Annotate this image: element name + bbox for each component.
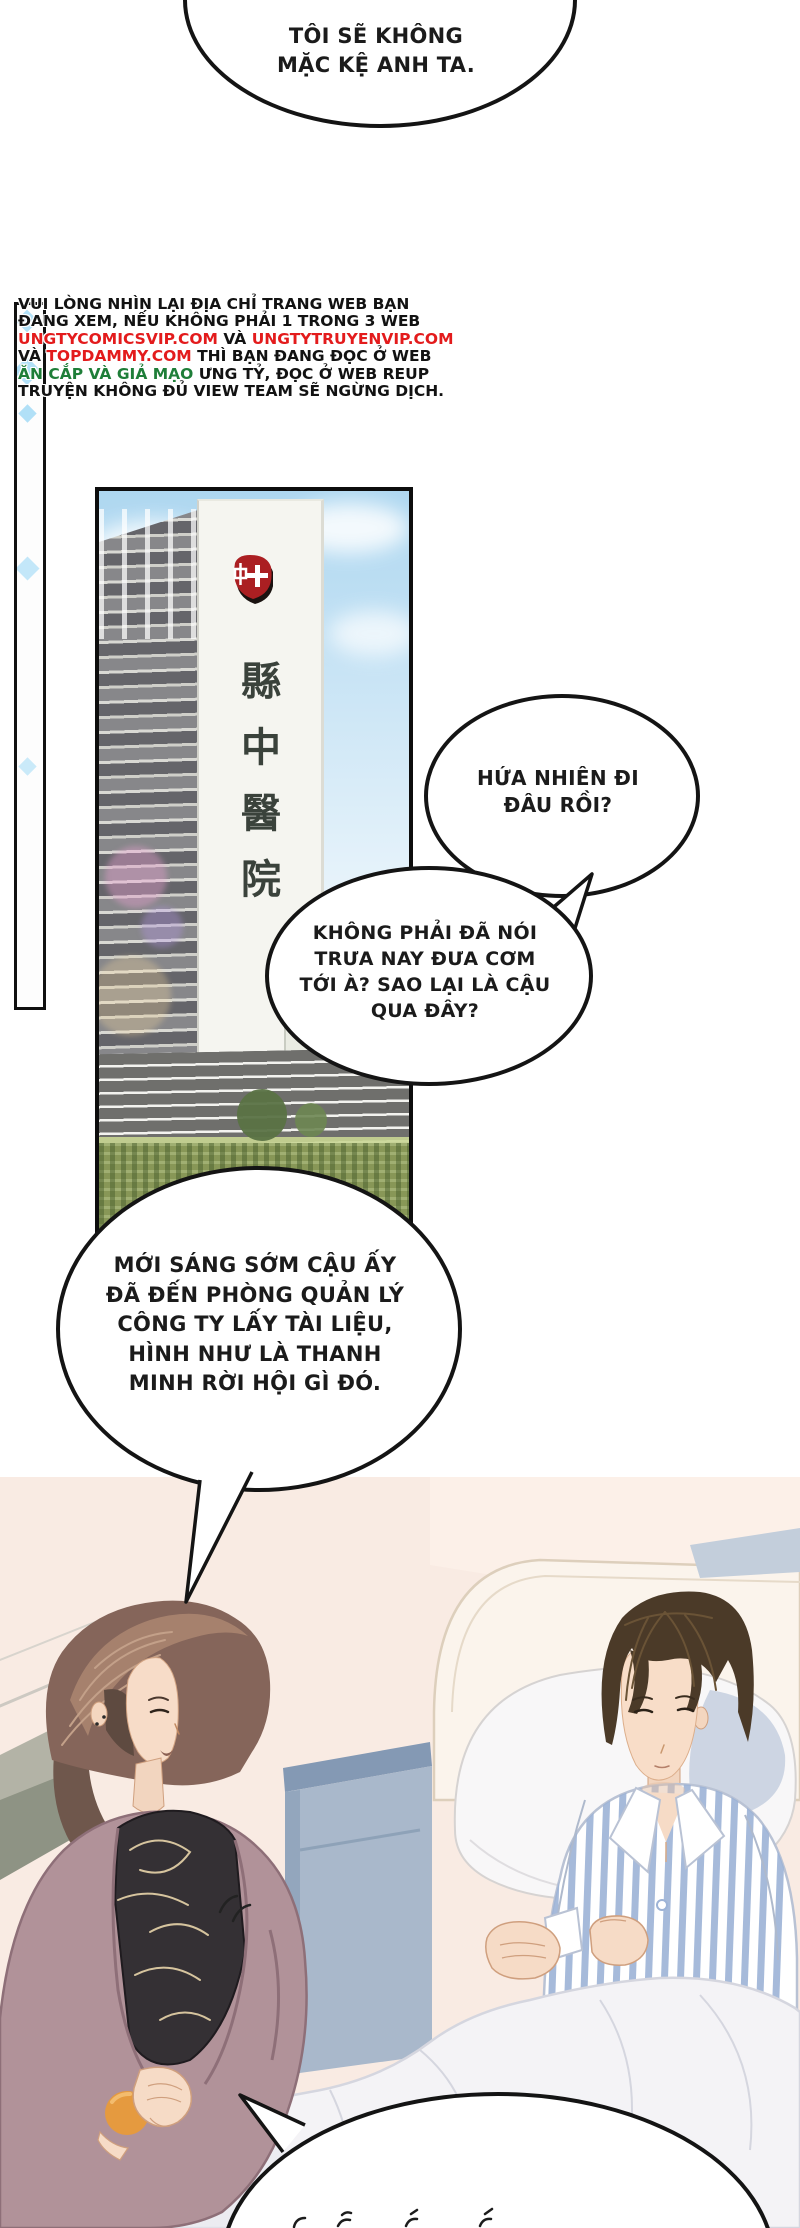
bubble-tail — [150, 1430, 270, 1615]
warning-segment: ĐANG XEM, NẾU KHÔNG PHẢI 1 TRONG 3 WEB — [18, 312, 420, 330]
tree — [295, 1103, 327, 1137]
warning-site-link: UNGTYTRUYENVIP.COM — [252, 330, 454, 348]
hospital-logo — [227, 553, 273, 605]
speech-text-top: TÔI SẼ KHÔNG MẶC KỆ ANH TA. — [215, 8, 537, 94]
warning-site-link: TOPDAMMY.COM — [46, 347, 191, 365]
tree — [237, 1089, 287, 1141]
panel-hospital-building: 縣 中 醫 院 — [95, 487, 413, 1240]
sign-char: 醫 — [237, 781, 285, 847]
clipped-letter-tops — [280, 2205, 510, 2228]
cloud — [329, 611, 413, 656]
warning-segment: THÌ BẠN ĐANG ĐỌC Ở WEB — [192, 347, 432, 365]
earring — [95, 1722, 99, 1726]
warning-segment: VÀ — [218, 330, 252, 348]
warning-site-link: UNGTYCOMICSVIP.COM — [18, 330, 218, 348]
warning-line: VUI LÒNG NHÌN LẠI ĐỊA CHỈ TRANG WEB BẠN — [18, 296, 488, 313]
sign-char: 院 — [237, 847, 285, 913]
speech-text-lunch: KHÔNG PHẢI ĐÃ NÓI TRƯA NAY ĐƯA CƠM TỚI À… — [285, 886, 565, 1058]
sign-char: 縣 — [237, 649, 285, 715]
earring — [102, 1715, 106, 1719]
pajama-button — [657, 1900, 667, 1910]
anti-piracy-warning: VUI LÒNG NHÌN LẠI ĐỊA CHỈ TRANG WEB BẠN … — [18, 296, 488, 400]
warning-line: ĐANG XEM, NẾU KHÔNG PHẢI 1 TRONG 3 WEB — [18, 313, 488, 330]
warning-segment: VÀ — [18, 347, 46, 365]
warning-segment: ƯNG TỶ, ĐỌC Ở WEB REUP — [193, 365, 429, 383]
speech-text-where: HỨA NHIÊN ĐI ĐÂU RỒI? — [444, 714, 672, 870]
visitor-ear — [91, 1702, 107, 1726]
warning-line: UNGTYCOMICSVIP.COM VÀ UNGTYTRUYENVIP.COM — [18, 331, 488, 348]
comic-page: 縣 中 醫 院 VUI LÒNG NHÌN LẠI ĐỊA CHỈ TRANG … — [0, 0, 800, 2228]
warning-line: TRUYỆN KHÔNG ĐỦ VIEW TEAM SẼ NGỪNG DỊCH. — [18, 383, 488, 400]
warning-segment: VUI LÒNG NHÌN LẠI ĐỊA CHỈ TRANG WEB BẠN — [18, 295, 409, 313]
warning-segment: ĂN CẮP VÀ GIẢ MẠO — [18, 365, 193, 383]
hospital-sign: 縣 中 醫 院 — [237, 649, 285, 913]
sparkle-icon — [15, 556, 39, 580]
sign-char: 中 — [237, 715, 285, 781]
lens-flare — [105, 846, 167, 908]
speech-text-morning: MỚI SÁNG SỚM CẬU ẤY ĐÃ ĐẾN PHÒNG QUẢN LÝ… — [86, 1196, 424, 1454]
lens-flare — [141, 906, 183, 948]
panel-sparkle-strip — [14, 302, 46, 1010]
sparkle-icon — [18, 757, 36, 775]
sparkle-icon — [18, 404, 36, 422]
warning-line: ĂN CẮP VÀ GIẢ MẠO ƯNG TỶ, ĐỌC Ở WEB REUP — [18, 366, 488, 383]
facade-mullions — [99, 509, 201, 639]
warning-line: VÀ TOPDAMMY.COM THÌ BẠN ĐANG ĐỌC Ở WEB — [18, 348, 488, 365]
warning-segment: TRUYỆN KHÔNG ĐỦ VIEW TEAM SẼ NGỪNG DỊCH. — [18, 382, 444, 400]
